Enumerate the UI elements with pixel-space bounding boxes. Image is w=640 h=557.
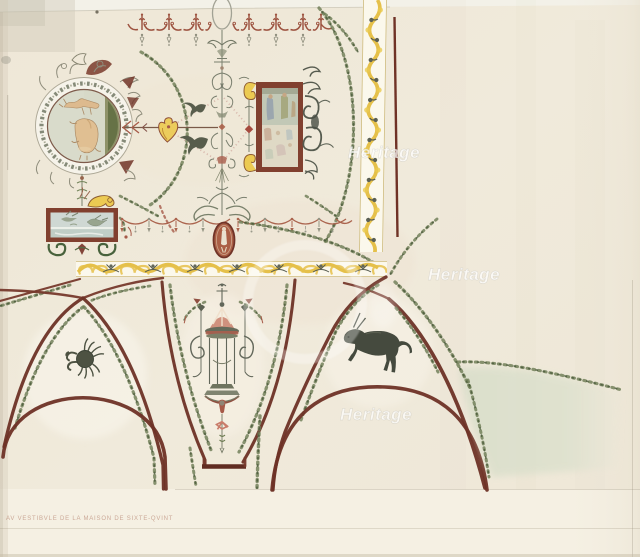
svg-text:Heritage: Heritage (340, 405, 412, 424)
svg-text:Heritage: Heritage (348, 143, 420, 162)
svg-text:Heritage: Heritage (428, 265, 500, 284)
svg-text:AV VESTIBVLE DE LA MAISON DE: AV VESTIBVLE DE LA MAISON DE SIXTE-QVINT (6, 516, 173, 522)
